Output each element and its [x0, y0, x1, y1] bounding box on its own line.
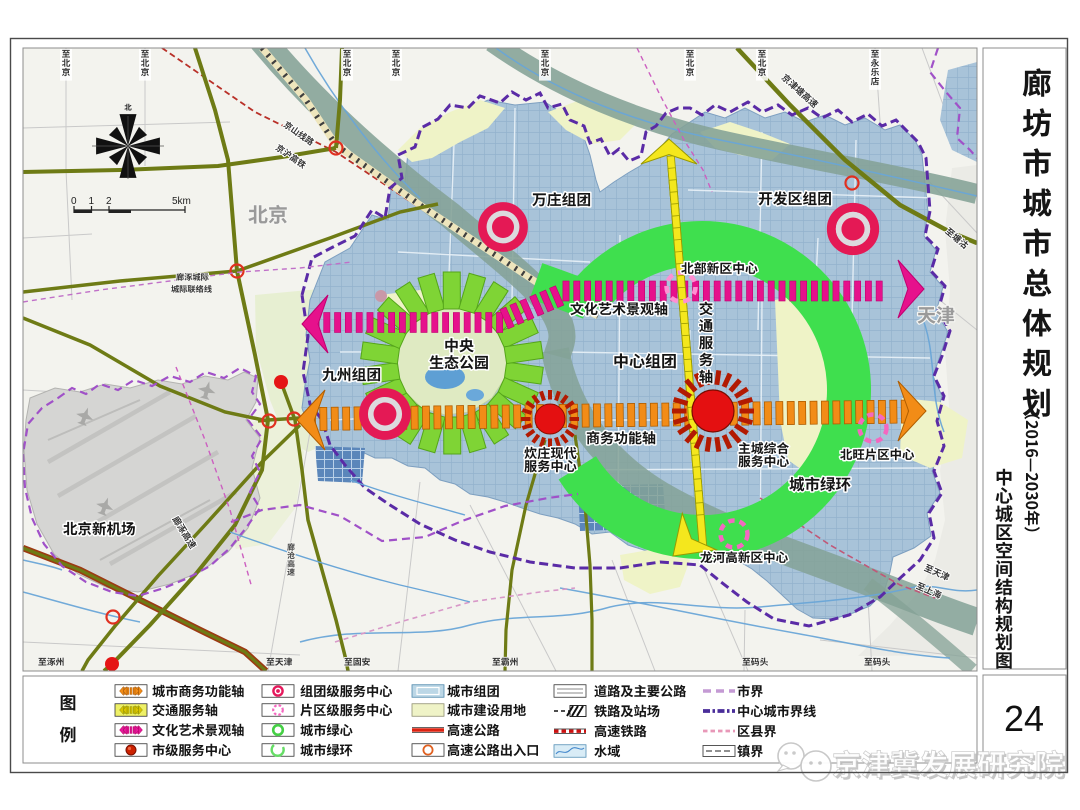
- svg-text:24: 24: [1004, 698, 1044, 739]
- svg-text:2: 2: [106, 196, 112, 207]
- svg-text:1: 1: [89, 196, 95, 207]
- svg-text:0: 0: [71, 196, 77, 207]
- svg-text:5km: 5km: [172, 196, 191, 207]
